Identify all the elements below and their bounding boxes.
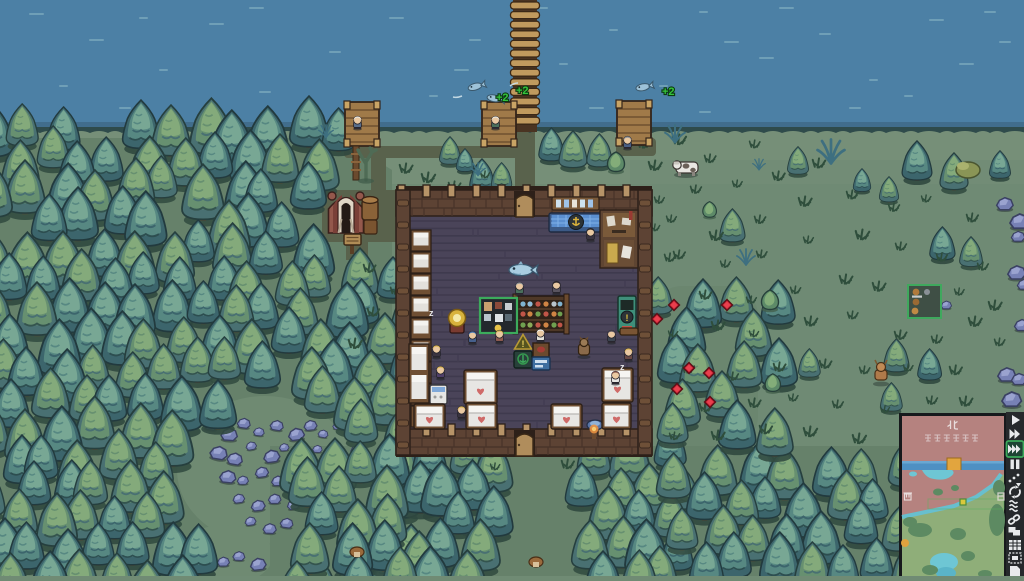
svg-text:!: ! [522,339,525,349]
svg-text:+2: +2 [516,85,529,97]
svg-text:+2: +2 [662,86,675,98]
svg-text:+2: +2 [496,92,509,104]
svg-text:z: z [620,362,625,372]
svg-text:z: z [429,308,434,318]
svg-text:!: ! [626,313,629,323]
